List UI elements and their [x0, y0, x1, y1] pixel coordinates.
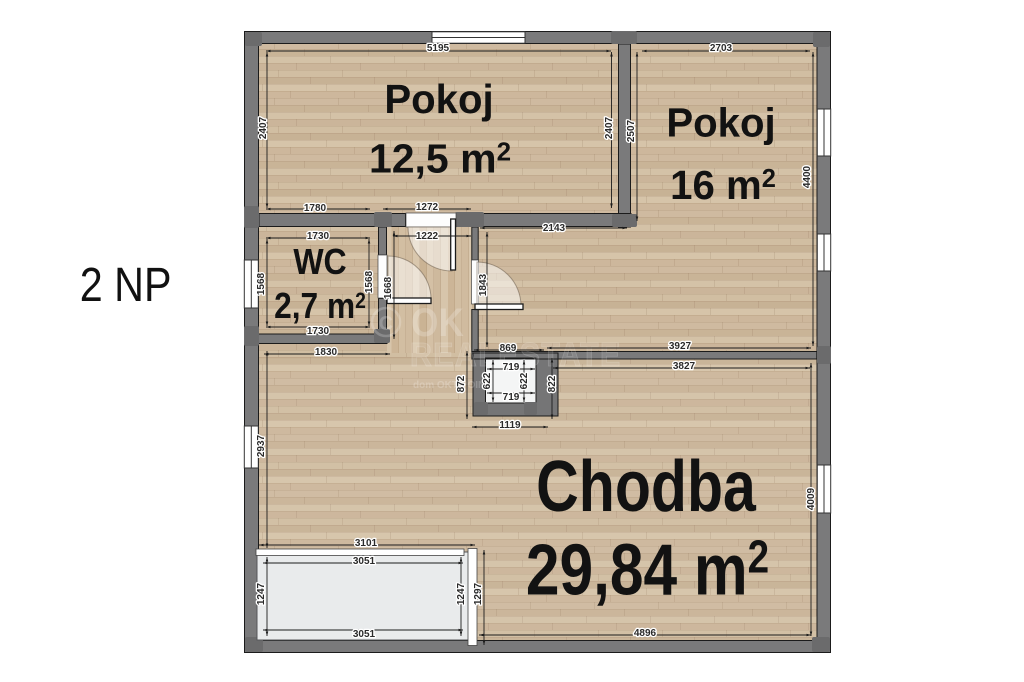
svg-text:4009: 4009 — [806, 487, 817, 510]
svg-text:3101: 3101 — [355, 538, 378, 549]
svg-text:622: 622 — [519, 372, 530, 389]
svg-text:2,7 m2: 2,7 m2 — [274, 286, 366, 326]
svg-text:1247: 1247 — [456, 582, 467, 605]
svg-text:C: C — [379, 313, 393, 335]
svg-text:12,5 m2: 12,5 m2 — [369, 136, 511, 182]
svg-text:Pokoj: Pokoj — [666, 99, 775, 145]
svg-text:3051: 3051 — [353, 629, 376, 640]
svg-text:719: 719 — [503, 362, 520, 373]
svg-text:1668: 1668 — [383, 276, 394, 299]
svg-text:Chodba: Chodba — [536, 445, 757, 526]
svg-text:2 NP: 2 NP — [80, 258, 172, 312]
svg-text:4896: 4896 — [634, 628, 657, 639]
svg-text:2937: 2937 — [256, 434, 267, 457]
svg-text:5195: 5195 — [427, 43, 450, 54]
svg-text:869: 869 — [500, 343, 517, 354]
svg-text:3927: 3927 — [669, 341, 692, 352]
svg-text:2407: 2407 — [258, 116, 269, 139]
svg-text:Pokoj: Pokoj — [384, 76, 493, 122]
svg-text:1222: 1222 — [416, 231, 439, 242]
svg-text:1247: 1247 — [256, 582, 267, 605]
svg-text:2407: 2407 — [604, 116, 615, 139]
svg-text:1730: 1730 — [307, 326, 330, 337]
svg-text:1830: 1830 — [315, 347, 338, 358]
svg-text:16 m2: 16 m2 — [670, 162, 776, 208]
svg-text:WC: WC — [293, 242, 346, 282]
svg-text:622: 622 — [482, 372, 493, 389]
svg-text:3051: 3051 — [353, 556, 376, 567]
svg-text:29,84 m2: 29,84 m2 — [526, 531, 769, 611]
svg-text:dom OKTIPOINT: dom OKTIPOINT — [413, 380, 491, 391]
svg-text:2703: 2703 — [710, 43, 733, 54]
svg-text:1843: 1843 — [478, 273, 489, 296]
svg-text:4400: 4400 — [802, 165, 813, 188]
svg-text:872: 872 — [456, 375, 467, 392]
svg-text:1568: 1568 — [256, 272, 267, 295]
svg-text:719: 719 — [503, 392, 520, 403]
svg-text:1730: 1730 — [307, 231, 330, 242]
svg-text:1272: 1272 — [416, 202, 439, 213]
svg-text:1297: 1297 — [473, 582, 484, 605]
svg-text:822: 822 — [547, 375, 558, 392]
svg-text:1119: 1119 — [499, 420, 521, 431]
svg-text:2507: 2507 — [626, 119, 637, 142]
svg-text:2143: 2143 — [543, 223, 566, 234]
svg-text:1780: 1780 — [304, 203, 327, 214]
svg-text:3827: 3827 — [673, 361, 696, 372]
